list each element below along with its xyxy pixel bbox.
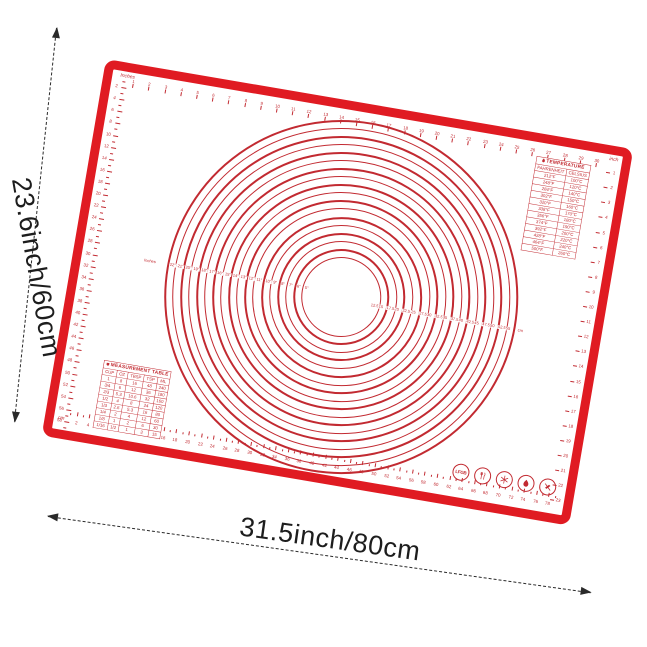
bottom-ruler-number: 22 [197,442,203,447]
bottom-ruler-minor-tick [418,473,419,475]
bottom-ruler-number: 72 [508,495,514,500]
left-ruler-tick [107,171,112,173]
left-ruler-minor-tick [100,212,103,213]
height-dimension-label: 23.6inch/60cm [2,156,71,378]
left-ruler-number: 38 [77,298,83,303]
left-ruler-minor-tick [118,105,121,106]
left-ruler-tick [64,421,69,423]
left-ruler-number: 28 [87,239,93,244]
left-ruler-minor-tick [96,236,99,237]
bottom-ruler-minor-tick [70,413,71,415]
left-ruler-minor-tick [110,153,113,154]
left-ruler-number: 26 [89,227,95,232]
bottom-ruler-number: 16 [160,435,166,440]
right-ruler-tick [603,187,607,189]
left-ruler-tick [97,230,102,232]
right-ruler-number: 19 [565,439,571,444]
left-ruler-minor-tick [88,284,91,285]
right-ruler-number: 17 [571,409,577,414]
right-ruler-tick [563,425,567,427]
left-ruler-minor-tick [120,93,123,94]
left-ruler-tick [105,183,110,185]
right-ruler-number: 11 [586,320,591,325]
bottom-ruler-minor-tick [207,436,208,438]
right-ruler-tick [593,246,597,248]
bottom-ruler-minor-tick [219,439,220,441]
left-ruler-minor-tick [67,403,70,404]
top-ruler-tick [420,133,422,137]
circle-inch-label: 11" [256,278,263,283]
left-ruler-minor-tick [63,427,66,428]
left-ruler-minor-tick [98,224,101,225]
right-ruler-tick [568,395,572,397]
left-ruler-minor-tick [104,188,107,189]
right-ruler-number: 12 [583,334,589,339]
left-ruler-number: 2 [115,84,118,89]
left-ruler-number: 52 [63,382,69,387]
bottom-ruler-number: 66 [470,488,476,493]
circle-cm-label: 45 [473,321,479,326]
top-ruler-tick [196,95,198,99]
right-ruler-number: 9 [592,290,595,295]
left-ruler-number: 8 [109,120,112,125]
left-ruler-tick [76,350,81,352]
bottom-ruler-number: 64 [458,486,464,491]
left-ruler-tick [91,266,96,268]
right-ruler-number: 8 [595,275,598,280]
right-ruler-tick [596,232,600,234]
bottom-ruler-minor-tick [443,477,444,479]
bottom-ruler-minor-tick [232,441,233,443]
left-ruler-number: 10 [106,131,112,136]
right-ruler-tick [555,470,559,472]
left-ruler-number: 16 [100,167,106,172]
bottom-ruler-number: 54 [396,476,402,481]
circle-inch-label: 9" [272,280,277,285]
left-ruler-tick [83,314,88,316]
bottom-ruler-number: 76 [533,499,539,504]
bottom-ruler-number: 58 [421,480,427,485]
top-ruler-tick [531,152,533,156]
right-ruler-tick [588,276,592,278]
left-ruler-minor-tick [82,320,85,321]
right-ruler-number: 13 [581,349,587,354]
left-ruler-number: 20 [95,191,101,196]
left-ruler-number: 30 [85,251,91,256]
left-ruler-tick [66,409,71,411]
left-ruler-number: 40 [75,310,81,315]
left-ruler-number: 56 [59,406,65,411]
bottom-ruler-minor-tick [505,487,506,489]
bottom-ruler-minor-tick [468,481,469,483]
bottom-ruler-tick [226,438,228,442]
left-ruler-number: 12 [104,143,110,148]
bottom-ruler-number: 74 [520,497,526,502]
circle-inch-label: 5" [304,286,309,291]
left-ruler-minor-tick [84,308,87,309]
circle-inch-label: 7" [288,283,293,288]
bottom-ruler-tick [89,414,91,418]
right-ruler-tick [573,365,577,367]
top-ruler-tick [212,98,214,102]
top-ruler-tick [148,87,150,91]
bottom-ruler-minor-tick [517,490,518,492]
left-ruler-tick [89,278,94,280]
right-ruler-number: 2 [610,186,613,191]
circle-cm-label: 40 [458,318,464,323]
bottom-ruler-minor-tick [406,470,407,472]
right-ruler-number: 23 [555,498,561,503]
bottom-ruler-number: 4 [87,423,90,428]
left-ruler-tick [117,111,122,113]
left-ruler-number: 42 [73,322,79,327]
left-ruler-tick [115,123,120,125]
right-ruler-number: 6 [600,245,603,250]
right-ruler-tick [598,217,602,219]
left-ruler-minor-tick [71,379,74,380]
temperature-table: TEMPERATUREFAHRENHEITCELSIUS212°F100°C24… [521,156,591,259]
left-ruler-tick [93,254,98,256]
left-ruler-number: 58 [57,418,63,423]
bottom-ruler-minor-tick [493,485,494,487]
top-ruler-tick [180,92,182,96]
circle-cm-suffix: cm [517,328,524,333]
top-ruler-tick [308,114,310,118]
bottom-ruler-number: 24 [210,444,216,449]
bottom-ruler-number: 26 [222,446,228,451]
left-ruler-minor-tick [108,165,111,166]
right-ruler-number: 14 [578,364,584,369]
left-ruler-minor-tick [94,248,97,249]
left-ruler-minor-tick [122,81,125,82]
left-ruler-number: 6 [111,108,114,113]
bottom-ruler-minor-tick [194,434,195,436]
bottom-ruler-tick [437,474,439,478]
bottom-ruler-number: 30 [247,450,253,455]
left-ruler-minor-tick [69,391,72,392]
left-ruler-tick [68,397,73,399]
circle-cm-label: 55 [505,326,511,331]
bottom-ruler-minor-tick [530,492,531,494]
right-ruler-number: 3 [607,201,610,206]
left-ruler-number: 4 [113,96,116,101]
left-ruler-minor-tick [75,355,78,356]
left-ruler-number: 44 [71,334,77,339]
left-ruler-number: 54 [61,394,67,399]
top-ruler-tick [260,106,262,110]
circle-cm-label: 15 [378,304,384,309]
right-ruler-number: 22 [558,483,564,488]
top-ruler-tick [515,149,517,153]
right-ruler-number: 5 [602,230,605,235]
circle-inch-label: 8" [280,282,285,287]
left-ruler-minor-tick [90,272,93,273]
bottom-ruler-number: 50 [371,471,377,476]
left-ruler-minor-tick [73,367,76,368]
right-ruler-number: 18 [568,424,574,429]
right-ruler-tick [581,321,585,323]
right-ruler-number: 4 [605,216,608,221]
bottom-ruler-minor-tick [542,494,543,496]
left-ruler-tick [74,361,79,363]
top-ruler-tick [228,100,230,104]
bottom-ruler-number: 78 [545,501,551,506]
left-ruler-tick [121,87,126,89]
right-ruler-tick [578,336,582,338]
bottom-ruler-number: 2 [74,421,77,426]
left-ruler-minor-tick [112,141,115,142]
measurement-table: MEASUREMENT TABLECUPOZTBSPTSPML181648240… [93,360,172,439]
right-ruler-number: 21 [560,468,566,473]
no-knife-icon [538,477,558,497]
left-ruler-minor-tick [116,117,119,118]
bottom-ruler-tick [213,436,215,440]
bottom-ruler-number: 20 [185,440,191,445]
left-ruler-number: 46 [69,346,75,351]
left-ruler-number: 18 [97,179,103,184]
bottom-ruler-minor-tick [480,483,481,485]
pastry-mat: LFGB [42,59,634,526]
right-ruler-number: 7 [597,260,600,265]
circle-axis-prefix: Inches [143,258,156,264]
left-ruler-minor-tick [80,332,83,333]
bottom-ruler-number: 56 [408,478,414,483]
left-ruler-minor-tick [86,296,89,297]
right-ruler-tick [575,351,579,353]
bottom-ruler-minor-tick [182,432,183,434]
bottom-ruler-tick [188,431,190,435]
bottom-ruler-number: 18 [172,438,178,443]
left-ruler-number: 34 [81,275,87,280]
certification-badges: LFGB [451,462,557,496]
right-ruler-tick [591,261,595,263]
right-ruler-number: 1 [612,171,615,176]
bottom-ruler-tick [424,472,426,476]
product-image: LFGB [0,0,647,647]
bottom-ruler-number: 52 [384,474,390,479]
top-ruler-tick [436,136,438,140]
bottom-ruler-minor-tick [455,479,456,481]
top-ruler-tick [132,84,134,88]
left-ruler-tick [79,338,84,340]
bottom-ruler-minor-tick [430,475,431,477]
left-ruler-tick [72,373,77,375]
top-ruler-tick [164,89,166,93]
right-ruler-tick [601,202,605,204]
left-ruler-tick [95,242,100,244]
left-ruler-tick [119,99,124,101]
right-ruler-tick [550,499,554,501]
bottom-ruler-minor-tick [83,415,84,417]
left-ruler-number: 14 [102,155,108,160]
right-ruler-number: 20 [563,454,569,459]
top-ruler-tick [452,138,454,142]
table-cell: 1 [118,425,136,434]
right-ruler-number: 10 [588,305,594,310]
left-ruler-number: 36 [79,286,85,291]
right-ruler-tick [586,291,590,293]
left-ruler-tick [109,159,114,161]
left-ruler-tick [81,326,86,328]
left-ruler-number: 22 [93,203,99,208]
fork-knife-icon [473,466,493,486]
left-ruler-tick [70,385,75,387]
right-ruler-tick [583,306,587,308]
top-ruler-tick [595,163,597,167]
left-ruler-tick [111,147,116,149]
bottom-ruler-tick [163,427,165,431]
top-ruler-tick [484,144,486,148]
right-ruler-tick [565,410,569,412]
circle-cm-label: 30 [426,313,432,318]
circle-inch-label: 6" [296,284,301,289]
bottom-ruler-number: 62 [446,484,452,489]
bottom-ruler-number: 28 [234,448,240,453]
bottom-ruler-tick [76,412,78,416]
left-ruler-number: 32 [83,263,89,268]
top-ruler-tick [276,108,278,112]
bottom-ruler-tick [176,429,178,433]
left-ruler-tick [113,135,118,137]
bottom-ruler-number: 68 [483,491,489,496]
left-ruler-minor-tick [77,344,80,345]
bottom-ruler-minor-tick [393,468,394,470]
right-ruler-unit-label: inch [609,156,619,162]
table-cell: 1/16 [93,421,108,430]
left-ruler-minor-tick [92,260,95,261]
left-ruler-minor-tick [106,177,109,178]
left-ruler-number: 24 [91,215,97,220]
mat-print-area: LFGB [52,69,623,515]
bottom-ruler-tick [412,470,414,474]
left-ruler-tick [85,302,90,304]
top-ruler-tick [244,103,246,107]
right-ruler-tick [560,440,564,442]
top-ruler-tick [468,141,470,145]
bottom-ruler-tick [399,467,401,471]
bottom-ruler-minor-tick [170,430,171,432]
circle-cm-label: 35 [442,315,448,320]
right-ruler-tick [558,455,562,457]
bottom-ruler-number: 70 [495,493,501,498]
top-ruler-tick [292,111,294,115]
circle-cm-label: 50 [489,323,495,328]
left-ruler-tick [101,206,106,208]
top-ruler-tick [499,147,501,151]
right-ruler-tick [606,172,610,174]
left-ruler-minor-tick [114,129,117,130]
left-ruler-minor-tick [102,200,105,201]
bottom-ruler-number: 60 [433,482,439,487]
right-ruler-number: 16 [573,394,579,399]
left-ruler-minor-tick [65,415,68,416]
flame-icon [516,474,536,494]
left-ruler-tick [103,194,108,196]
right-ruler-tick [570,380,574,382]
lfgb-text: LFGB [455,469,467,476]
circle-cm-label: 25 [410,310,416,315]
right-ruler-number: 15 [576,379,582,384]
bottom-ruler-tick [201,433,203,437]
left-ruler-tick [99,218,104,220]
left-ruler-tick [87,290,92,292]
